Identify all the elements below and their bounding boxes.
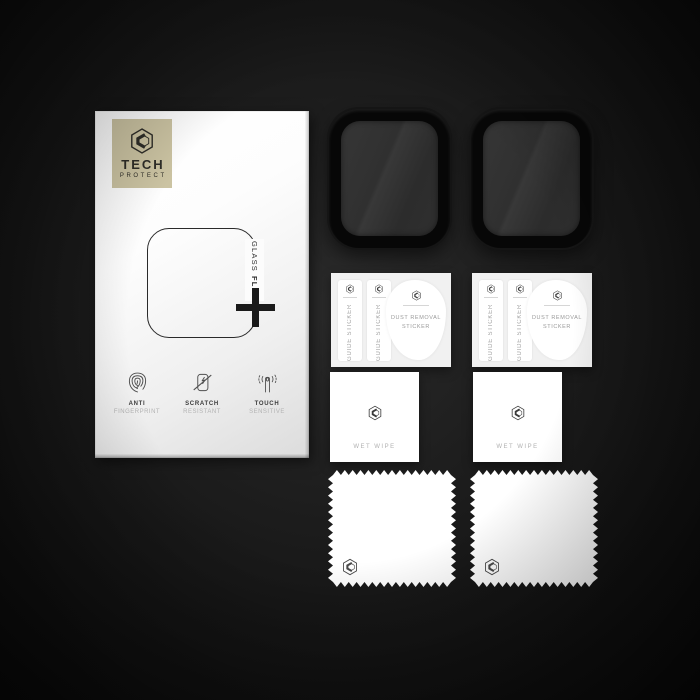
feature-label-bottom: RESISTANT bbox=[183, 409, 221, 415]
wet-wipe-label: WET WIPE bbox=[330, 444, 419, 450]
hexagon-logo-icon bbox=[411, 290, 422, 301]
feature-label-top: SCRATCH bbox=[185, 401, 219, 407]
hexagon-logo-icon bbox=[483, 558, 501, 576]
sticker-card-2: GUIDE STICKER GUIDE STICKER DUST REMOVAL… bbox=[472, 273, 592, 367]
hexagon-logo-icon bbox=[552, 290, 563, 301]
screen-protector-2 bbox=[471, 109, 592, 248]
feature-scratch-resistant: SCRATCH RESISTANT bbox=[172, 369, 232, 415]
brand-logo-square: TECH PROTECT bbox=[112, 119, 172, 188]
hexagon-logo-icon bbox=[345, 284, 355, 294]
feature-touch-sensitive: TOUCH SENSITIVE bbox=[237, 369, 297, 415]
divider bbox=[544, 305, 570, 306]
guide-sticker-label: GUIDE STICKER bbox=[517, 298, 523, 361]
product-photo: TECH PROTECT GLASS FLEX ANTI FINGERPRINT… bbox=[0, 0, 700, 700]
screen-protector-1 bbox=[329, 109, 450, 248]
hexagon-logo-icon bbox=[510, 405, 526, 421]
cleaning-cloth-1 bbox=[328, 470, 456, 587]
plus-icon bbox=[236, 288, 275, 327]
guide-sticker: GUIDE STICKER bbox=[479, 280, 503, 361]
feature-label-top: TOUCH bbox=[255, 401, 280, 407]
dust-removal-sticker: DUST REMOVAL STICKER bbox=[386, 280, 446, 360]
feature-anti-fingerprint: ANTI FINGERPRINT bbox=[107, 369, 167, 415]
wet-wipe-packet-1: WET WIPE bbox=[330, 372, 419, 462]
dust-sticker-label: DUST REMOVAL STICKER bbox=[532, 314, 582, 333]
sticker-card-1: GUIDE STICKER GUIDE STICKER DUST REMOVAL… bbox=[331, 273, 451, 367]
feature-label-bottom: FINGERPRINT bbox=[114, 409, 160, 415]
feature-icon-row: ANTI FINGERPRINT SCRATCH RESISTANT TOUCH… bbox=[107, 369, 297, 415]
dust-sticker-label: DUST REMOVAL STICKER bbox=[391, 314, 441, 333]
fingerprint-icon bbox=[124, 369, 151, 396]
wet-wipe-packet-2: WET WIPE bbox=[473, 372, 562, 462]
brand-subname: PROTECT bbox=[117, 173, 166, 179]
hexagon-logo-icon bbox=[515, 284, 525, 294]
guide-sticker-label: GUIDE STICKER bbox=[488, 298, 494, 361]
hexagon-logo-icon bbox=[367, 405, 383, 421]
wet-wipe-label: WET WIPE bbox=[473, 444, 562, 450]
protector-glass bbox=[483, 121, 580, 236]
protector-glass bbox=[341, 121, 438, 236]
brand-name: TECH bbox=[119, 157, 164, 172]
retail-box: TECH PROTECT GLASS FLEX ANTI FINGERPRINT… bbox=[95, 111, 309, 458]
feature-label-top: ANTI bbox=[129, 401, 146, 407]
product-name-word1: GLASS bbox=[250, 241, 259, 272]
cleaning-cloth-2 bbox=[470, 470, 598, 587]
touch-icon bbox=[254, 369, 281, 396]
hexagon-logo-icon bbox=[341, 558, 359, 576]
scratch-icon bbox=[189, 369, 216, 396]
guide-sticker-label: GUIDE STICKER bbox=[347, 298, 353, 361]
hexagon-logo-icon bbox=[128, 127, 156, 155]
feature-label-bottom: SENSITIVE bbox=[249, 409, 285, 415]
guide-sticker-label: GUIDE STICKER bbox=[376, 298, 382, 361]
divider bbox=[403, 305, 429, 306]
dust-removal-sticker: DUST REMOVAL STICKER bbox=[527, 280, 587, 360]
hexagon-logo-icon bbox=[374, 284, 384, 294]
guide-sticker: GUIDE STICKER bbox=[338, 280, 362, 361]
hexagon-logo-icon bbox=[486, 284, 496, 294]
